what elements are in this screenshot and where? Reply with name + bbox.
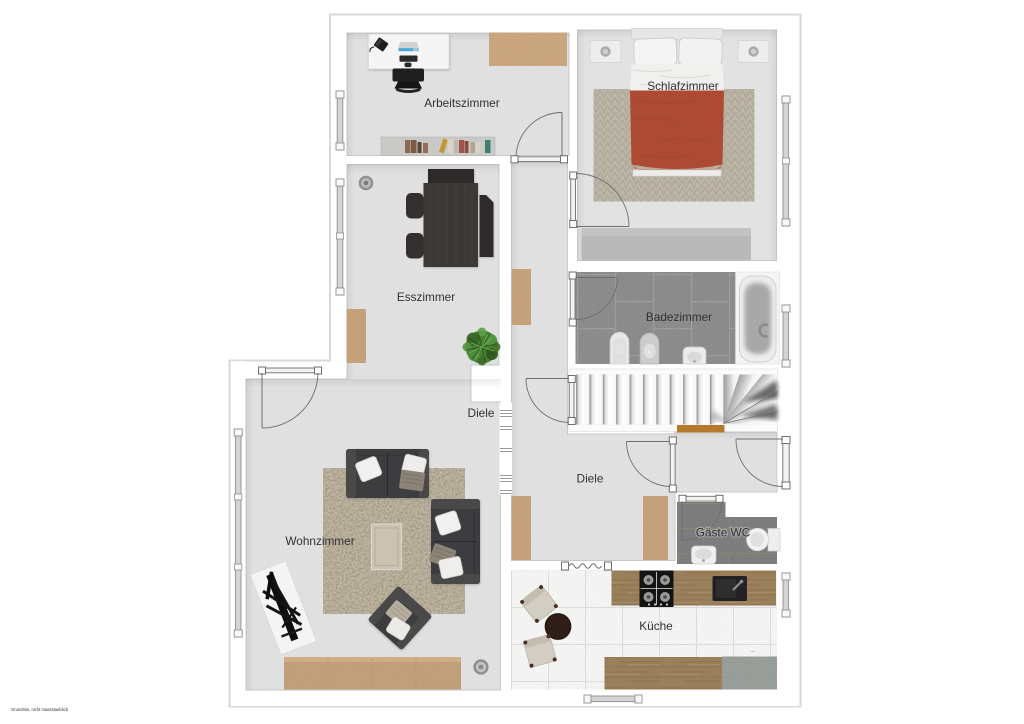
- svg-text:Arbeitszimmer: Arbeitszimmer: [424, 96, 499, 110]
- svg-text:Grundriss, nicht massstaeblich: Grundriss, nicht massstaeblich: [11, 707, 69, 712]
- svg-text:Esszimmer: Esszimmer: [397, 290, 455, 304]
- svg-text:Badezimmer: Badezimmer: [646, 310, 712, 324]
- svg-text:Küche: Küche: [639, 619, 673, 633]
- svg-text:···: ···: [750, 649, 755, 655]
- svg-text:Wohnzimmer: Wohnzimmer: [285, 534, 354, 548]
- svg-text:Diele: Diele: [577, 472, 604, 486]
- svg-text:Schlafzimmer: Schlafzimmer: [647, 79, 719, 93]
- svg-text:Diele: Diele: [468, 406, 495, 420]
- svg-text:Gäste WC: Gäste WC: [696, 526, 751, 540]
